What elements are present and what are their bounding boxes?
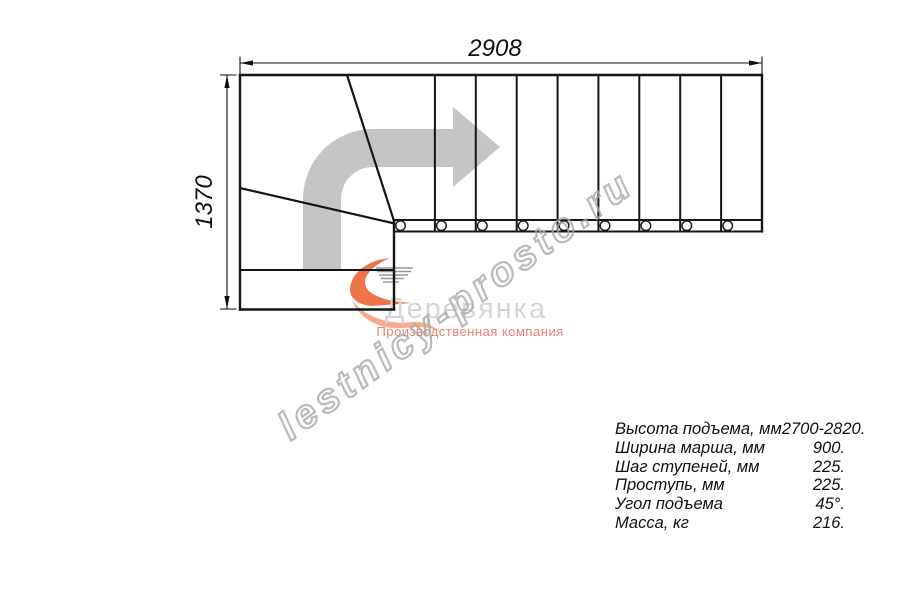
baluster-circle <box>437 221 447 231</box>
spec-value: 900. <box>813 439 845 458</box>
spec-row: Проступь, мм 225. <box>615 476 845 495</box>
spec-label: Масса, кг <box>615 514 689 533</box>
spec-row: Ширина марша, мм 900. <box>615 439 845 458</box>
dimension-width: 2908 <box>240 35 762 74</box>
baluster-circle <box>559 221 569 231</box>
spec-value: 45°. <box>815 495 845 514</box>
baluster-circle <box>641 221 651 231</box>
spec-row: Шаг ступеней, мм 225. <box>615 458 845 477</box>
spec-label: Ширина марша, мм <box>615 439 765 458</box>
stair-plan-page: Деревянка Производственная компания <box>0 0 900 600</box>
direction-arrow <box>303 107 500 270</box>
dimension-arrowhead-icon <box>224 296 229 309</box>
spec-table: Высота подъема, мм 2700-2820. Ширина мар… <box>615 420 845 533</box>
spec-value: 216. <box>813 514 845 533</box>
baluster-circle <box>682 221 692 231</box>
logo-subtitle: Производственная компания <box>376 324 563 339</box>
spec-value: 225. <box>813 476 845 495</box>
baluster-circle <box>478 221 488 231</box>
spec-value: 2700-2820. <box>782 420 866 439</box>
dimension-arrowhead-icon <box>224 75 229 88</box>
dimension-width-label: 2908 <box>467 35 522 62</box>
spec-row: Масса, кг 216. <box>615 514 845 533</box>
spec-label: Шаг ступеней, мм <box>615 458 759 477</box>
logo-name: Деревянка <box>385 293 547 325</box>
dimension-arrowhead-icon <box>240 60 253 65</box>
spec-row: Высота подъема, мм 2700-2820. <box>615 420 845 439</box>
baluster-circle <box>723 221 733 231</box>
baluster-circle <box>518 221 528 231</box>
spec-label: Высота подъема, мм <box>615 420 782 439</box>
dimension-arrowhead-icon <box>749 60 762 65</box>
dimension-height-label: 1370 <box>191 175 218 229</box>
dimension-height: 1370 <box>191 75 237 309</box>
baluster-circle <box>396 221 406 231</box>
spec-label: Проступь, мм <box>615 476 725 495</box>
spec-row: Угол подъема 45°. <box>615 495 845 514</box>
baluster-circle <box>600 221 610 231</box>
spec-label: Угол подъема <box>615 495 723 514</box>
baluster-circles <box>396 221 733 231</box>
spec-value: 225. <box>813 458 845 477</box>
